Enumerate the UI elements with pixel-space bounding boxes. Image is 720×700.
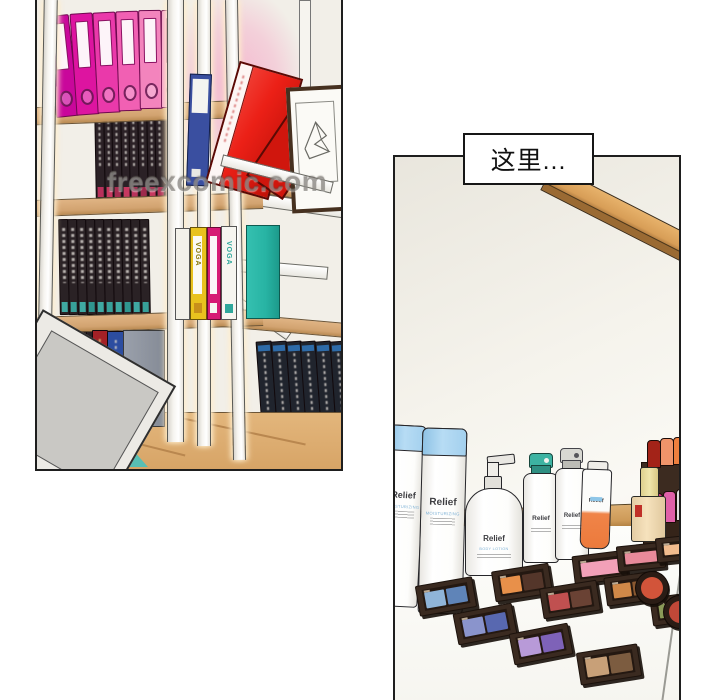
eyeshadow-pan [462,616,486,637]
pink-binder [138,10,163,109]
eyeshadow-pan [609,653,634,674]
eyeshadow-pan [612,582,632,598]
binder-label [210,236,217,294]
binder-label-window [143,18,158,64]
binder-chip [225,304,233,313]
eyeshadow-pan [585,656,610,677]
yellow-binder-voga: VOGA [190,227,207,320]
compact-pan [669,601,681,623]
palette-window [583,649,636,680]
eyeshadow-pan [500,575,522,594]
makeup-palette [576,643,642,685]
palette-window [661,539,681,557]
makeup-palette [680,527,681,554]
binder-label [192,79,209,114]
eyeshadow-pan [424,589,446,608]
shelf-post [197,0,211,446]
palette-window [515,629,566,660]
shelf-post [167,0,184,442]
binder-ring [101,87,115,104]
binder-brand-text: VOGA [194,242,201,267]
watermark-text: freexcomic.com [89,166,343,198]
compact-pan [641,577,663,599]
palette-window [622,547,659,567]
eyeshadow-pan [625,550,658,564]
eyeshadow-pan [540,632,564,653]
palettes-layer [395,157,679,700]
round-compact [635,571,669,605]
eyeshadow-pan [446,585,468,604]
palette-window [546,586,595,614]
binder-label-window [120,19,135,66]
comic-panel-vanity: Relief MOISTURIZING Relief MOISTURIZING … [393,155,681,700]
comic-page: VOGA VOGA freexcomic.com [0,0,720,700]
binder-ring [59,90,74,107]
binder-ring [80,88,94,105]
eyeshadow-pan [548,592,570,611]
makeup-palette [508,623,573,666]
binder-label-window [97,20,113,67]
eyeshadow-pan [518,636,542,657]
eyeshadow-pan [664,542,681,555]
magenta-binder-voga [207,227,221,320]
white-binder [175,228,190,320]
teal-box [246,225,280,319]
palette-window [459,609,510,640]
palette-window [422,582,471,611]
eyeshadow-pan [484,612,508,633]
binder-label: VOGA [193,236,202,294]
eyeshadow-pan [570,589,592,608]
binder-label-window [75,21,92,69]
white-binder-voga: VOGA [221,226,237,320]
speech-text: 这里... [491,141,567,177]
eyeshadow-pan [580,559,619,578]
comic-panel-bookshelf: VOGA VOGA freexcomic.com [35,0,343,471]
binder-ring [123,85,137,101]
binder-ring [144,83,157,99]
binder-chip [194,303,202,313]
speech-bubble: 这里... [463,133,594,185]
binder-chip [210,303,217,313]
makeup-palette [655,534,681,564]
binder-brand-text: VOGA [225,241,232,266]
